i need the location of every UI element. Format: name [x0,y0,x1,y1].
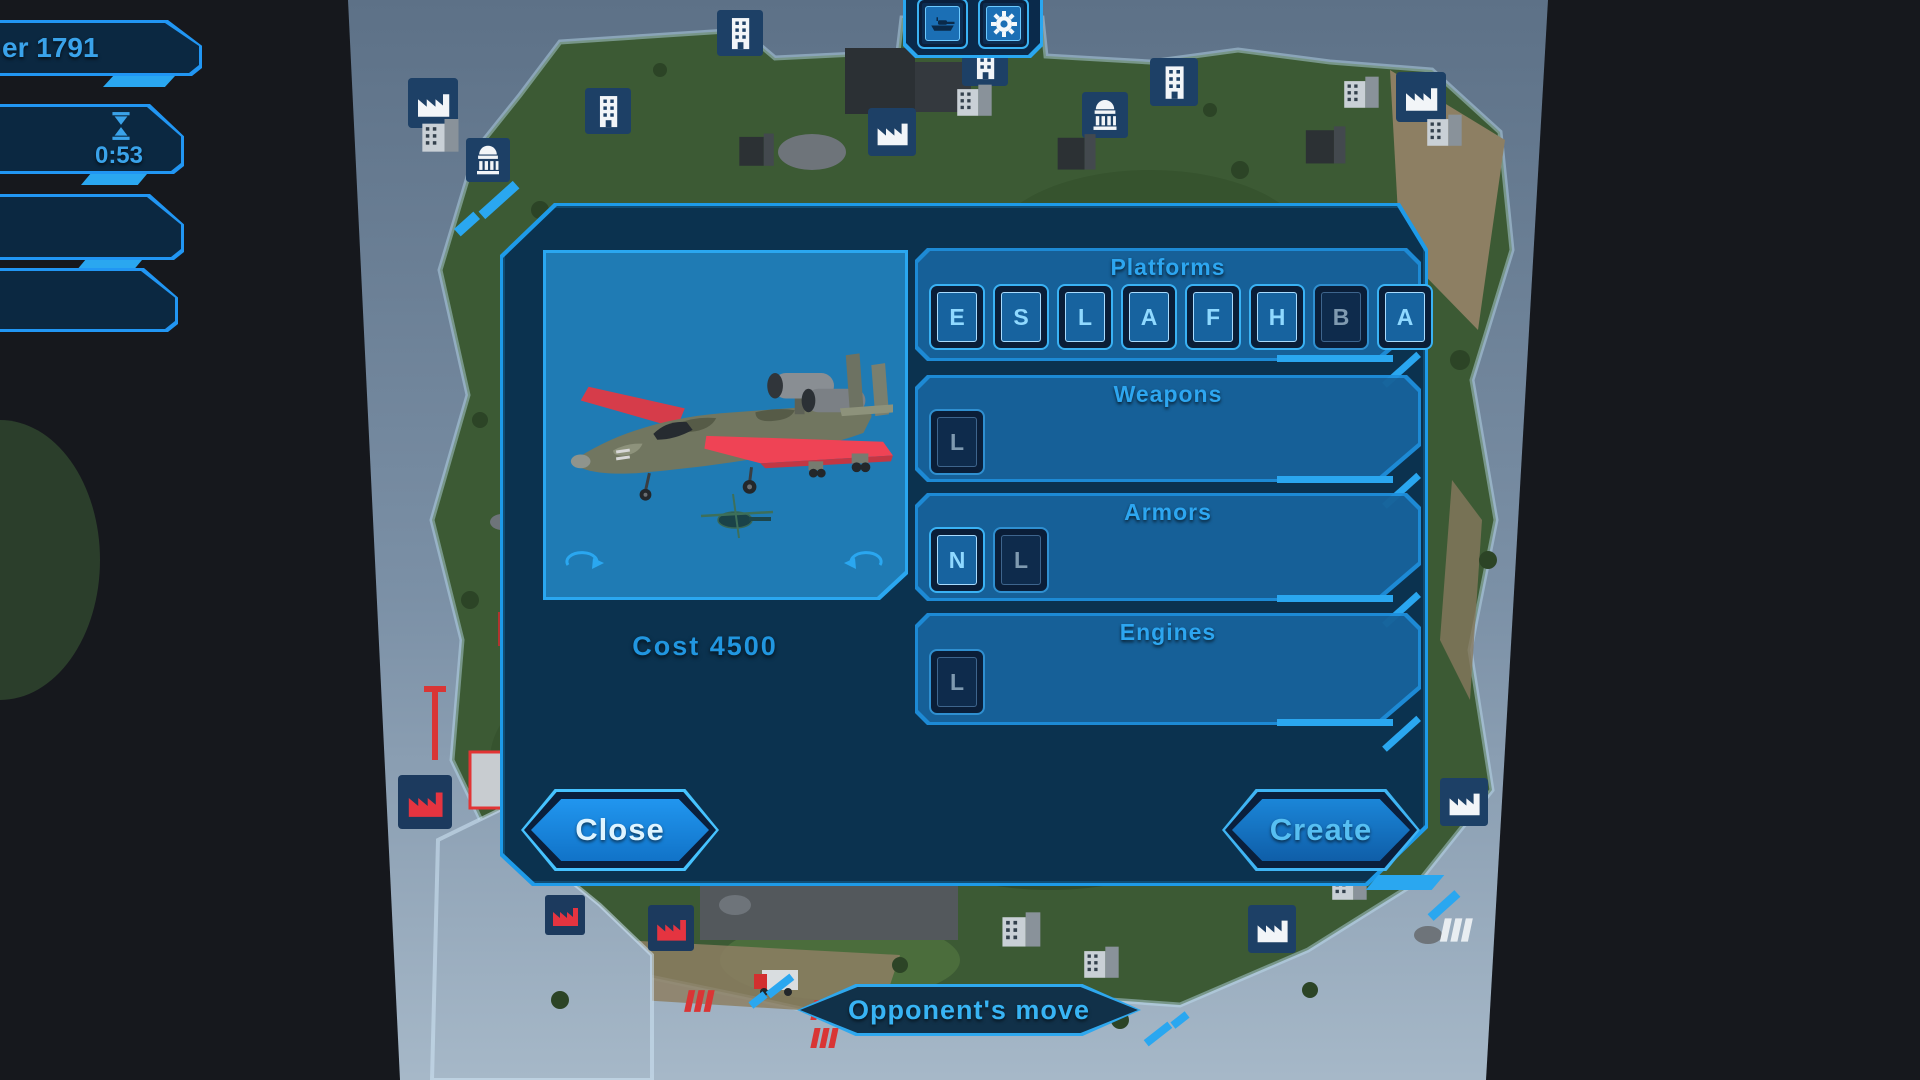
armor-button-l[interactable]: L [993,527,1049,593]
timer-value: 0:53 [76,142,162,170]
engine-button-l[interactable]: L [929,649,985,715]
armor-button-label: L [1001,535,1041,585]
engines-title: Engines [915,619,1421,646]
platform-button-l[interactable]: L [1057,284,1113,350]
section-accent [1277,719,1393,726]
armor-button-n[interactable]: N [929,527,985,593]
platform-button-b[interactable]: B [1313,284,1369,350]
weapon-button-l[interactable]: L [929,409,985,475]
section-accent [1277,476,1393,483]
platform-button-label: A [1129,292,1169,342]
weapon-button-label: L [937,417,977,467]
player-panel: er 1791 [0,20,202,76]
platform-button-label: F [1193,292,1233,342]
panel-tab-decoration [103,76,175,87]
close-button[interactable]: Close [521,789,719,871]
timer-panel: 0:53 [0,104,184,174]
player-name-label: er 1791 [0,32,99,64]
armors-title: Armors [915,499,1421,526]
close-button-label: Close [521,789,719,871]
engines-section: Engines L [915,613,1421,725]
platform-button-a2[interactable]: A [1377,284,1433,350]
aircraft-model [559,318,893,534]
gear-icon [991,11,1017,37]
platform-button-label: L [1065,292,1105,342]
armor-button-label: N [937,535,977,585]
platforms-title: Platforms [915,254,1421,281]
section-accent [1277,355,1393,362]
create-unit-dialog: Cost 4500 Platforms E S L A F H B [500,203,1428,886]
platform-button-label: H [1257,292,1297,342]
armors-section: Armors N L [915,493,1421,601]
platform-button-label: B [1321,292,1361,342]
platform-button-label: E [937,292,977,342]
weapons-section: Weapons L [915,375,1421,482]
platform-button-label: S [1001,292,1041,342]
status-banner-label: Opponent's move [797,984,1141,1036]
rotate-cw-icon [843,542,889,574]
platform-button-f[interactable]: F [1185,284,1241,350]
platform-button-label: A [1385,292,1425,342]
weapons-title: Weapons [915,381,1421,408]
platform-button-s[interactable]: S [993,284,1049,350]
status-banner: Opponent's move [797,984,1141,1036]
game-screen: er 1791 0:53 [0,0,1920,1080]
rotate-right-button[interactable] [843,542,889,574]
units-button[interactable] [917,0,968,49]
platform-button-e[interactable]: E [929,284,985,350]
section-accent [1277,595,1393,602]
engine-button-label: L [937,657,977,707]
platform-button-a[interactable]: A [1121,284,1177,350]
hourglass-icon [110,111,132,141]
hud-panel-4 [0,268,178,332]
tank-icon [929,15,956,33]
cost-label: Cost [632,631,700,661]
create-button-label: Create [1222,789,1420,871]
settings-button[interactable] [978,0,1029,49]
hud-panel-3 [0,194,184,260]
platforms-section: Platforms E S L A F H B A [915,248,1421,361]
top-toolbar [903,0,1043,58]
cost-line: Cost 4500 [580,631,830,662]
cost-value: 4500 [710,631,778,661]
rotate-left-button[interactable] [559,542,605,574]
panel-tab-decoration [81,174,147,185]
platform-button-h[interactable]: H [1249,284,1305,350]
create-button[interactable]: Create [1222,789,1420,871]
unit-preview-panel [543,250,908,600]
rotate-ccw-icon [559,542,605,574]
